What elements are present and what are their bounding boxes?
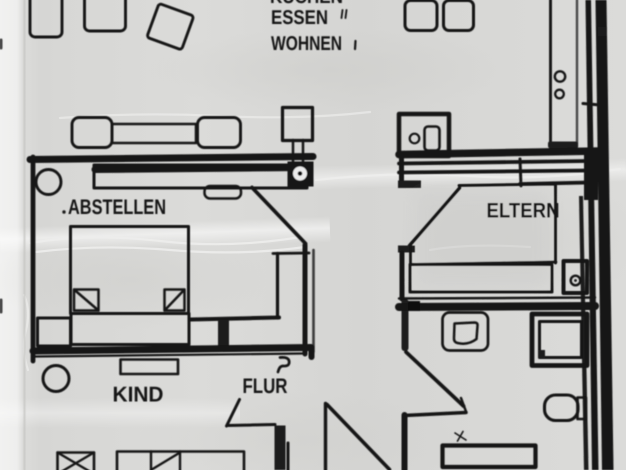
svg-text:ELTERN: ELTERN [487, 200, 560, 223]
svg-text:WOHNEN: WOHNEN [271, 33, 342, 55]
svg-text:KIND: KIND [113, 383, 164, 407]
svg-text:FLUR: FLUR [243, 375, 288, 398]
svg-text:ESSEN: ESSEN [271, 7, 328, 29]
svg-text:ABSTELLEN: ABSTELLEN [68, 196, 166, 219]
